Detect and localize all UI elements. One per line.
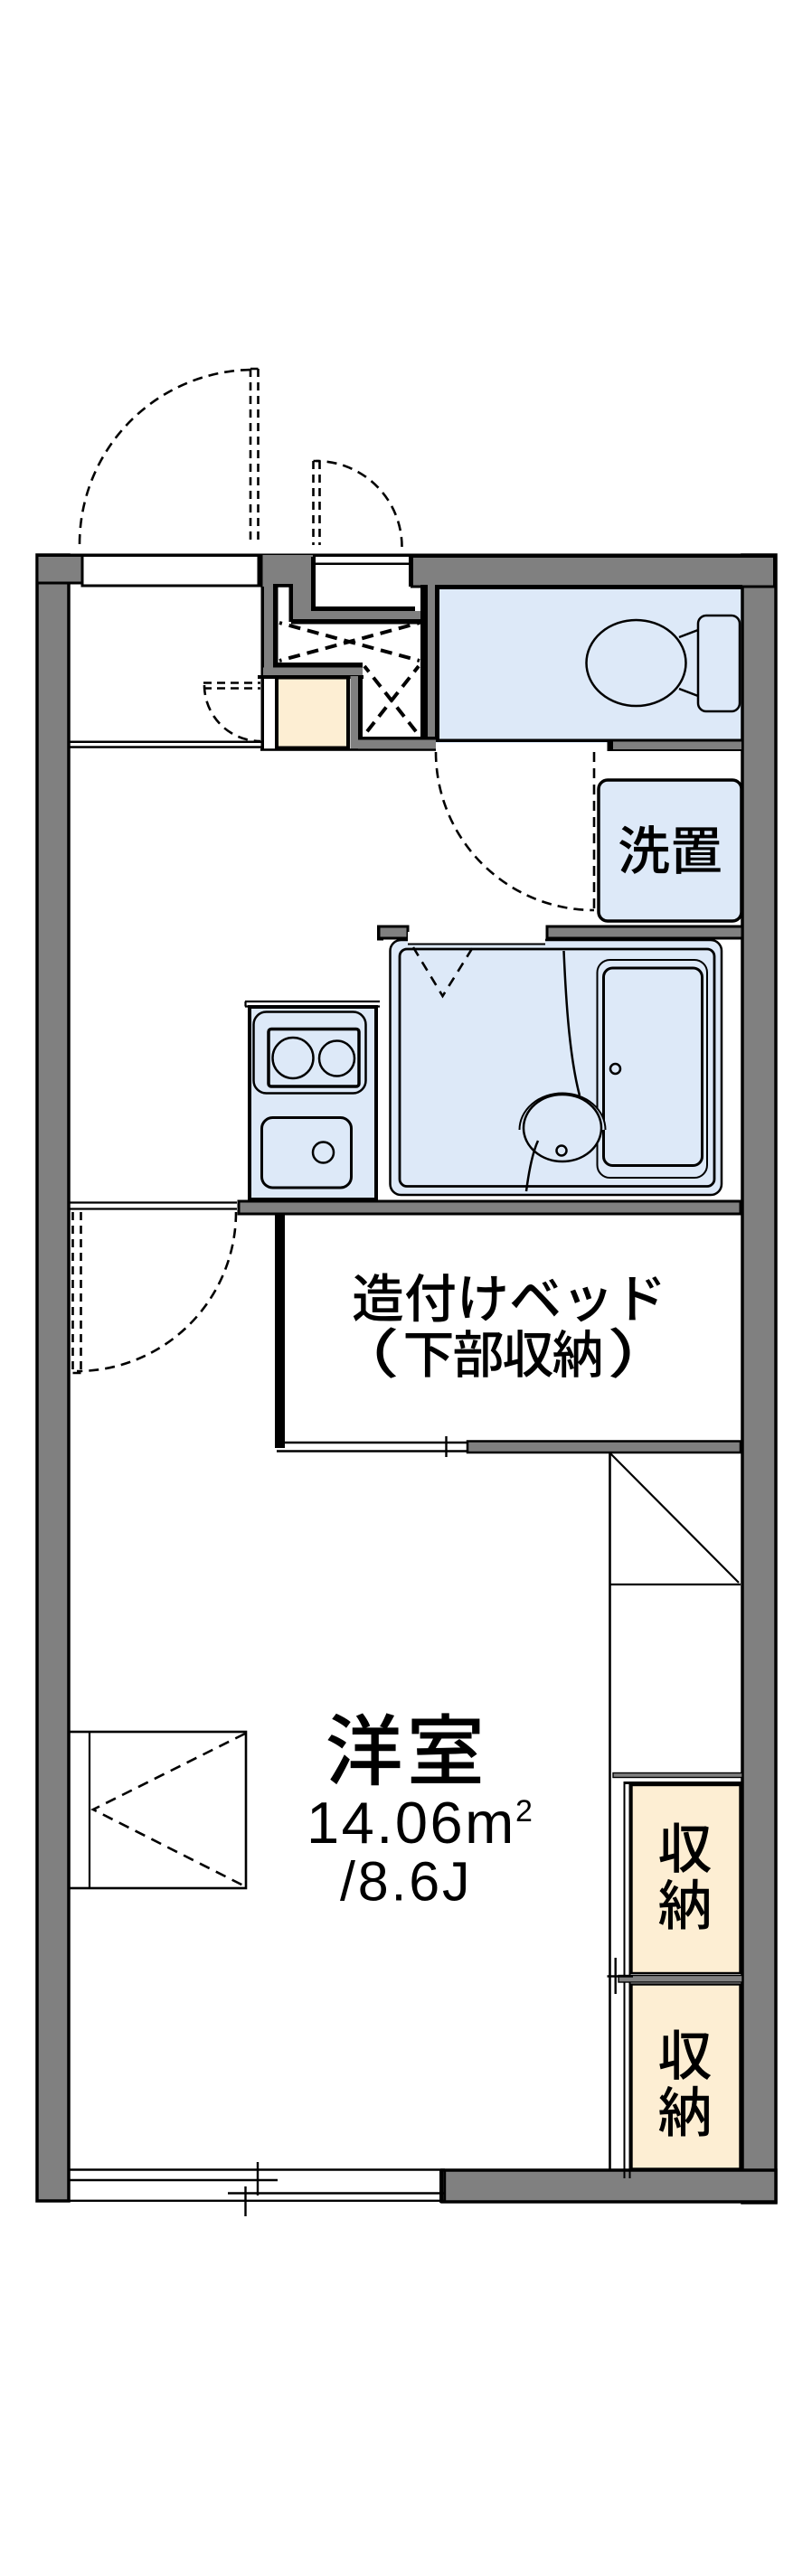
svg-text:14.06m: 14.06m	[307, 1790, 516, 1856]
svg-text:2: 2	[515, 1794, 533, 1829]
svg-text:/8.6J: /8.6J	[340, 1851, 472, 1913]
